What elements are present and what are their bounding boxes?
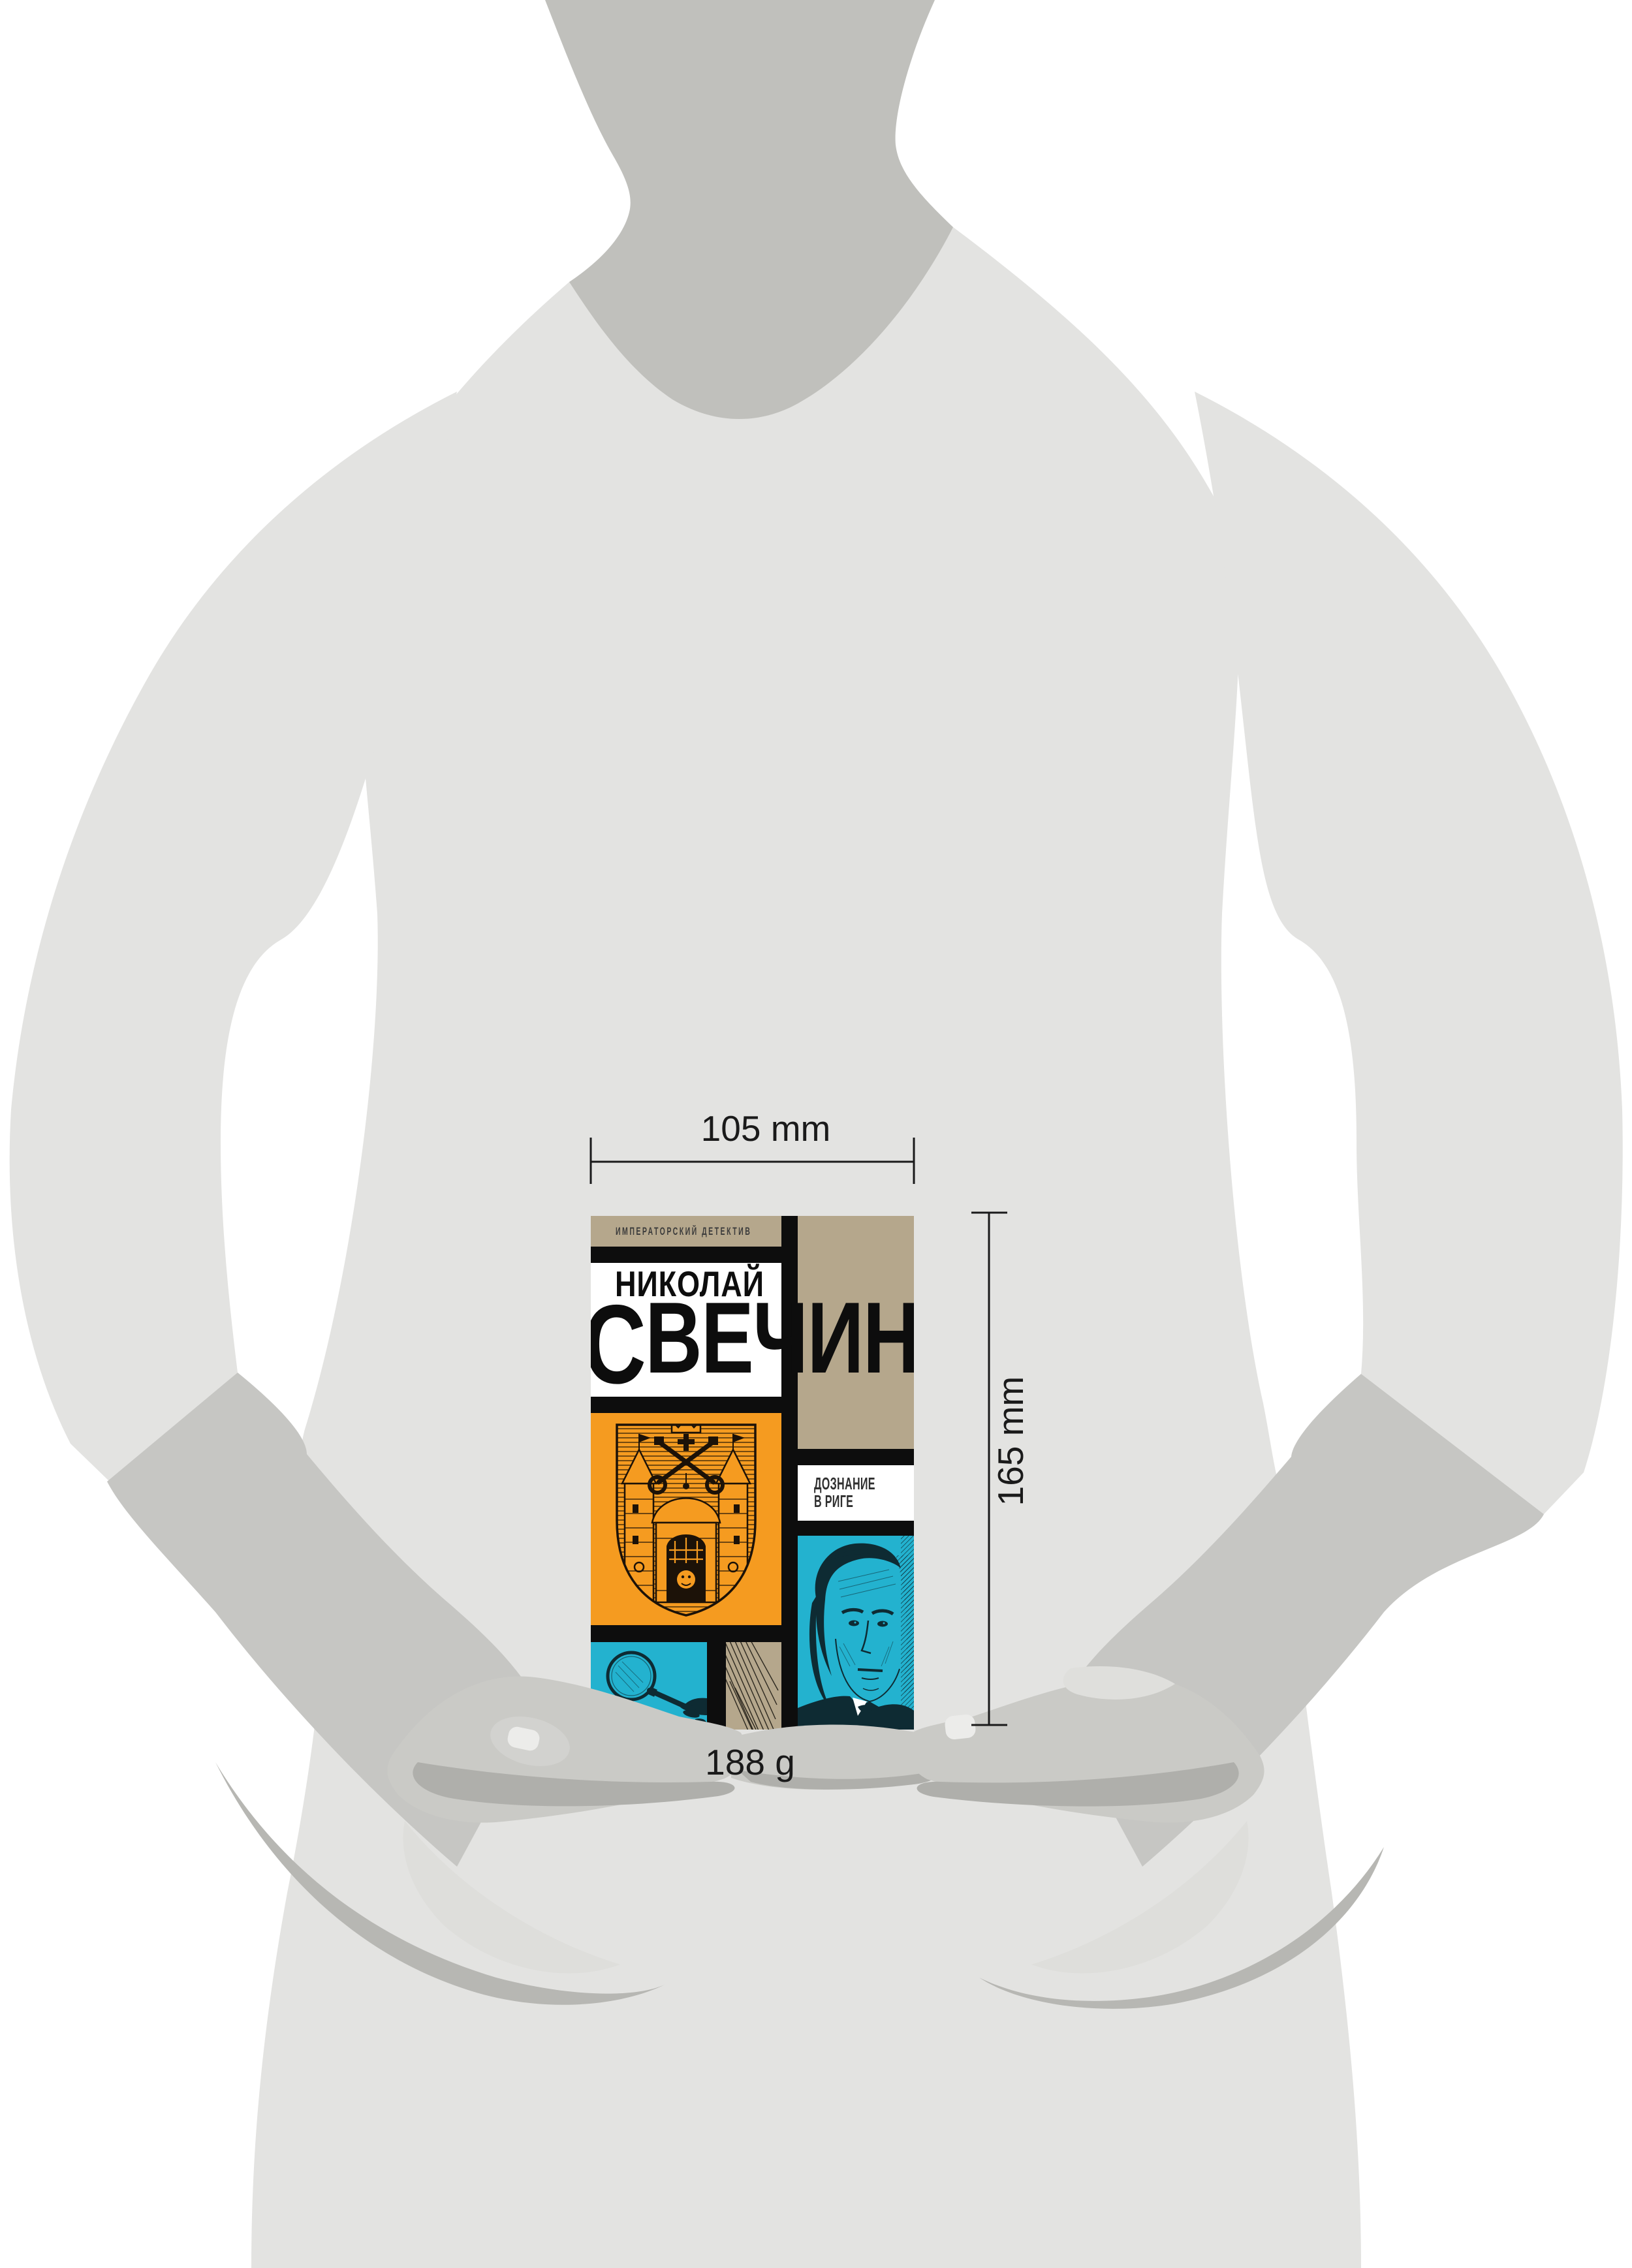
dimension-annotations: 105 mm 165 mm 188 g — [0, 0, 1632, 2268]
height-label: 165 mm — [990, 1376, 1031, 1506]
width-label: 105 mm — [701, 1108, 831, 1149]
weight-label: 188 g — [705, 1741, 795, 1783]
page: { "dimensions": { "width_label": "105 mm… — [0, 0, 1632, 2268]
